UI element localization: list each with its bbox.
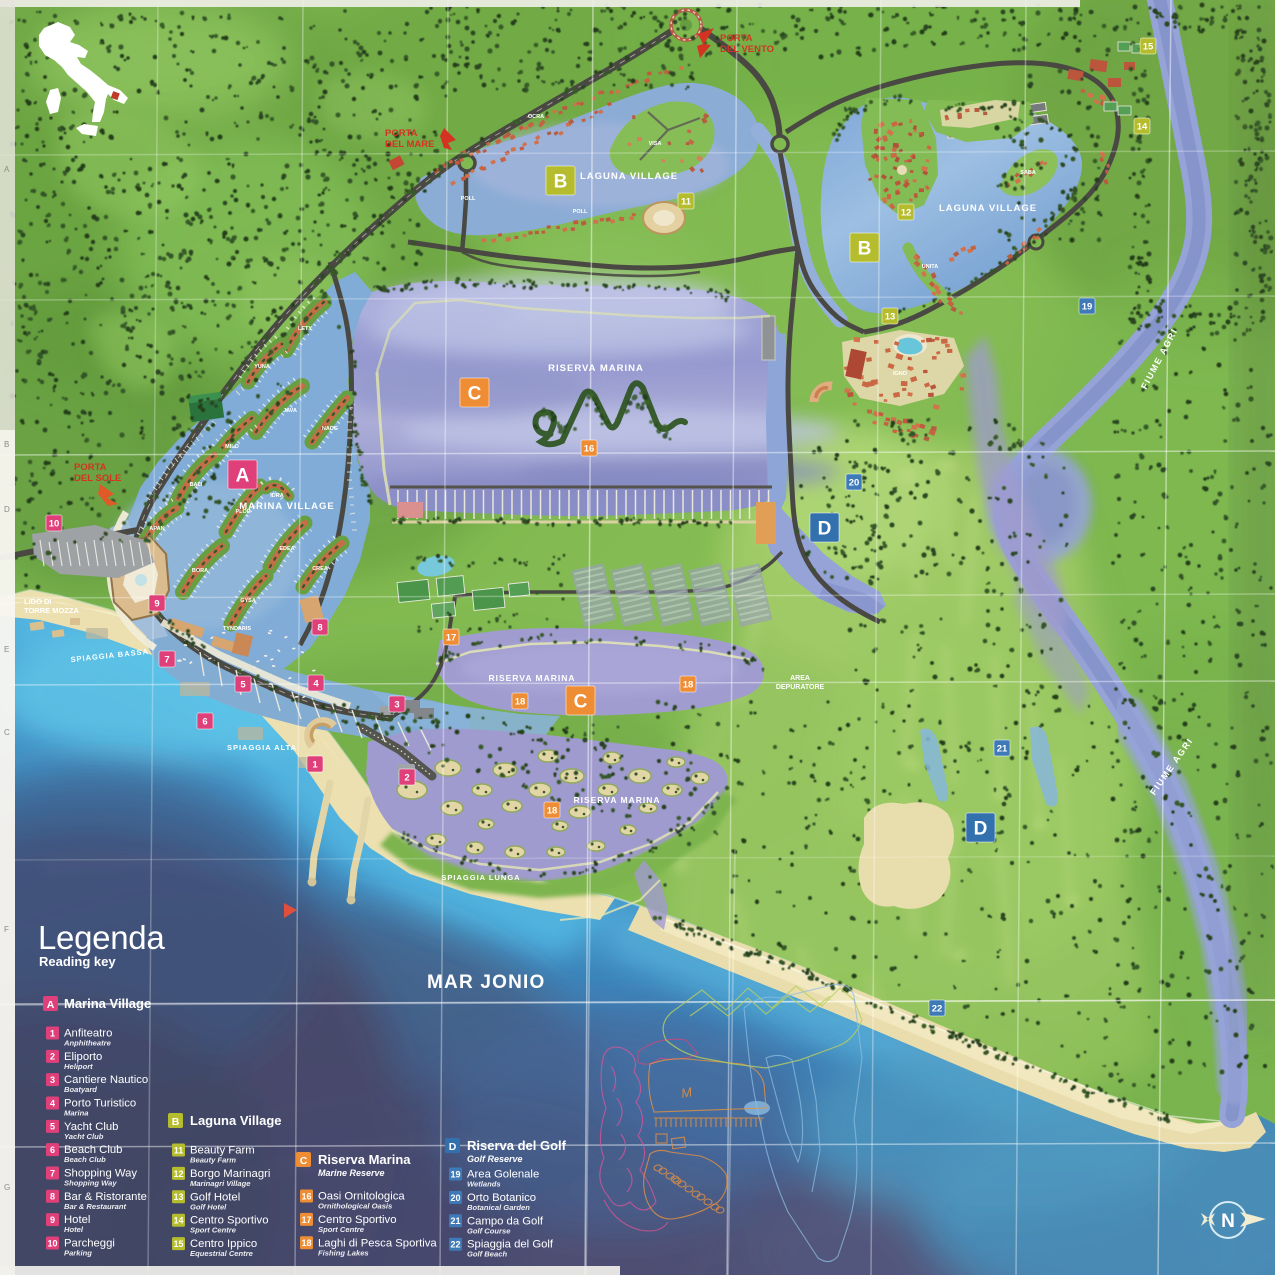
svg-text:IDRA: IDRA xyxy=(270,493,283,499)
svg-text:IGNO: IGNO xyxy=(893,371,908,377)
svg-text:20: 20 xyxy=(849,477,860,488)
svg-text:TYNDARIS: TYNDARIS xyxy=(223,626,251,632)
svg-text:GYSA: GYSA xyxy=(240,598,256,604)
svg-text:21: 21 xyxy=(997,743,1008,754)
svg-text:POLL: POLL xyxy=(573,209,588,215)
svg-text:Marina Village: Marina Village xyxy=(64,996,151,1011)
svg-text:PORTA: PORTA xyxy=(720,33,753,44)
svg-text:A: A xyxy=(236,465,250,486)
svg-text:BALI: BALI xyxy=(190,482,203,488)
svg-text:SPIAGGIA ALTA: SPIAGGIA ALTA xyxy=(227,743,297,752)
svg-text:APAN: APAN xyxy=(149,526,164,532)
svg-text:C: C xyxy=(574,691,588,712)
svg-text:16: 16 xyxy=(584,443,595,454)
svg-text:5: 5 xyxy=(240,679,246,690)
svg-text:8: 8 xyxy=(317,622,322,633)
svg-text:9: 9 xyxy=(154,598,159,609)
svg-text:13: 13 xyxy=(885,311,896,322)
svg-text:A: A xyxy=(47,999,55,1011)
svg-text:2: 2 xyxy=(404,772,409,783)
svg-text:YUNA: YUNA xyxy=(254,364,270,370)
svg-text:D: D xyxy=(4,505,10,514)
svg-text:LIDO DI: LIDO DI xyxy=(24,597,52,606)
svg-text:PLOE: PLOE xyxy=(236,509,251,515)
svg-text:LETY: LETY xyxy=(298,326,312,332)
svg-text:19: 19 xyxy=(1082,301,1093,312)
svg-text:PORTA: PORTA xyxy=(385,128,418,139)
svg-text:B: B xyxy=(858,238,872,259)
svg-text:1: 1 xyxy=(50,1028,55,1038)
svg-text:1: 1 xyxy=(312,759,318,770)
svg-text:UNITA: UNITA xyxy=(922,264,938,270)
svg-text:6: 6 xyxy=(202,716,207,727)
svg-text:12: 12 xyxy=(901,207,912,218)
svg-text:B: B xyxy=(554,171,568,192)
svg-text:N: N xyxy=(1221,1211,1235,1232)
svg-text:3: 3 xyxy=(394,699,399,710)
svg-text:VISA: VISA xyxy=(649,141,662,147)
svg-text:RISERVA MARINA: RISERVA MARINA xyxy=(573,795,660,805)
svg-text:BORA: BORA xyxy=(192,568,208,574)
svg-text:OCRA: OCRA xyxy=(528,114,544,120)
svg-text:MARINA VILLAGE: MARINA VILLAGE xyxy=(239,501,334,512)
svg-text:11: 11 xyxy=(681,196,692,207)
svg-text:15: 15 xyxy=(1143,41,1154,52)
svg-text:18: 18 xyxy=(683,679,694,690)
svg-text:PORTA: PORTA xyxy=(74,462,107,473)
svg-text:MAR JONIO: MAR JONIO xyxy=(427,972,545,993)
svg-text:DEL MARE: DEL MARE xyxy=(385,139,434,150)
svg-text:EDEA: EDEA xyxy=(279,546,294,552)
svg-text:Reading key: Reading key xyxy=(39,954,116,969)
svg-text:JAVA: JAVA xyxy=(283,408,297,414)
svg-text:A: A xyxy=(4,165,10,174)
svg-text:17: 17 xyxy=(446,632,457,643)
svg-text:MILO: MILO xyxy=(225,444,239,450)
svg-text:4: 4 xyxy=(313,678,319,689)
svg-text:7: 7 xyxy=(164,654,169,665)
svg-text:LAGUNA VILLAGE: LAGUNA VILLAGE xyxy=(939,203,1037,214)
svg-text:RISERVA MARINA: RISERVA MARINA xyxy=(548,363,644,374)
svg-text:TORRE MOZZA: TORRE MOZZA xyxy=(24,606,79,615)
svg-text:CREA: CREA xyxy=(312,566,328,572)
svg-text:G: G xyxy=(4,1183,10,1192)
svg-text:DEL SOLE: DEL SOLE xyxy=(74,473,121,484)
svg-text:22: 22 xyxy=(932,1003,943,1014)
svg-text:C: C xyxy=(468,383,482,404)
svg-text:F: F xyxy=(4,925,9,934)
svg-text:10: 10 xyxy=(49,518,60,529)
svg-text:DEL VENTO: DEL VENTO xyxy=(720,44,774,55)
svg-text:D: D xyxy=(818,518,832,539)
svg-text:LAGUNA VILLAGE: LAGUNA VILLAGE xyxy=(580,171,678,182)
svg-text:C: C xyxy=(4,728,10,737)
svg-text:AREA: AREA xyxy=(790,675,810,682)
svg-text:DEPURATORE: DEPURATORE xyxy=(776,684,825,691)
svg-text:POLL: POLL xyxy=(461,196,476,202)
svg-text:SPIAGGIA LUNGA: SPIAGGIA LUNGA xyxy=(441,873,520,882)
svg-text:RISERVA MARINA: RISERVA MARINA xyxy=(488,673,575,683)
svg-text:NADG: NADG xyxy=(322,426,338,432)
svg-text:B: B xyxy=(4,440,9,449)
svg-text:18: 18 xyxy=(547,805,558,816)
svg-text:Legenda: Legenda xyxy=(38,919,165,956)
svg-text:E: E xyxy=(4,645,9,654)
svg-text:SABA: SABA xyxy=(1020,170,1036,176)
svg-text:18: 18 xyxy=(515,696,526,707)
svg-text:D: D xyxy=(974,818,988,839)
svg-text:14: 14 xyxy=(1137,121,1148,132)
